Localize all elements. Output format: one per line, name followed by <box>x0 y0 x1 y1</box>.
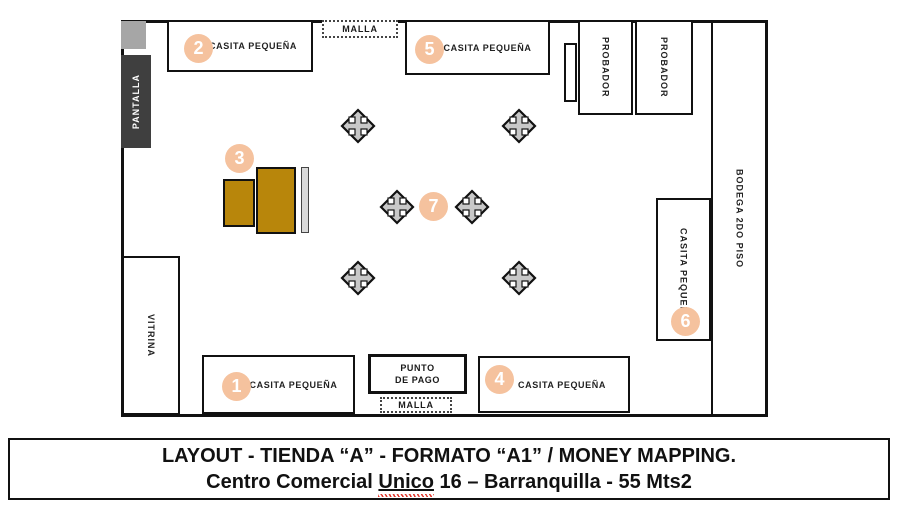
zone-number-badge: 1 <box>222 372 251 401</box>
zone-number-badge: 5 <box>415 35 444 64</box>
caption-line2-prefix: Centro Comercial <box>206 471 378 493</box>
casita-pequena-2: 2 CASITA PEQUEÑA <box>167 20 313 72</box>
pantalla-label: PANTALLA <box>131 74 141 129</box>
vitrina-label: VITRINA <box>146 314 156 357</box>
casita-pequena-4: 4 CASITA PEQUEÑA <box>478 356 630 413</box>
caption-line2-underlined: Unico <box>378 471 434 493</box>
vitrina: VITRINA <box>122 256 180 415</box>
cross-rack-icon <box>501 260 537 296</box>
punto-de-pago-line1: PUNTO <box>400 362 434 374</box>
zone-number-badge: 2 <box>184 34 213 63</box>
caption-line2: Centro Comercial Unico 16 – Barranquilla… <box>206 469 692 495</box>
caption-line2-suffix: 16 – Barranquilla - 55 Mts2 <box>434 471 692 493</box>
pantalla-panel: PANTALLA <box>121 55 151 148</box>
bodega-label: BODEGA 2DO PISO <box>735 169 745 268</box>
cross-rack-icon <box>340 260 376 296</box>
zone-number-badge: 7 <box>419 192 448 221</box>
zone-number-badge: 3 <box>225 144 254 173</box>
store-layout-canvas: PANTALLA 2 CASITA PEQUEÑA MALLA 5 CASITA… <box>0 0 900 510</box>
bodega-2do-piso: BODEGA 2DO PISO <box>713 20 766 417</box>
zone-number-badge: 6 <box>671 307 700 336</box>
probador-label: PROBADOR <box>659 37 669 98</box>
gold-table-large <box>256 167 296 234</box>
casita-pequena-5: 5 CASITA PEQUEÑA <box>405 20 550 75</box>
gold-table-small <box>223 179 255 227</box>
punto-de-pago-line2: DE PAGO <box>395 374 440 386</box>
cross-rack-icon <box>340 108 376 144</box>
malla-bottom: MALLA <box>380 397 452 413</box>
cross-rack-icon <box>454 189 490 225</box>
probador-2: PROBADOR <box>635 20 693 115</box>
caption-box: LAYOUT - TIENDA “A” - FORMATO “A1” / MON… <box>8 438 890 500</box>
casita-pequena-1: 1 CASITA PEQUEÑA <box>202 355 355 414</box>
malla-top: MALLA <box>322 20 398 38</box>
malla-bottom-label: MALLA <box>398 400 434 410</box>
cross-rack-icon <box>379 189 415 225</box>
punto-de-pago: PUNTO DE PAGO <box>368 354 467 394</box>
probador-side-shelf <box>564 43 577 102</box>
casita-pequena-6: CASITA PEQUEÑA 6 <box>656 198 711 341</box>
malla-top-label: MALLA <box>342 24 378 34</box>
caption-line1: LAYOUT - TIENDA “A” - FORMATO “A1” / MON… <box>162 443 736 469</box>
probador-label: PROBADOR <box>601 37 611 98</box>
cross-rack-icon <box>501 108 537 144</box>
entrance-gray-block <box>121 21 146 49</box>
zone-number-badge: 4 <box>485 365 514 394</box>
wall-shelf-strip <box>301 167 309 233</box>
probador-1: PROBADOR <box>578 20 633 115</box>
